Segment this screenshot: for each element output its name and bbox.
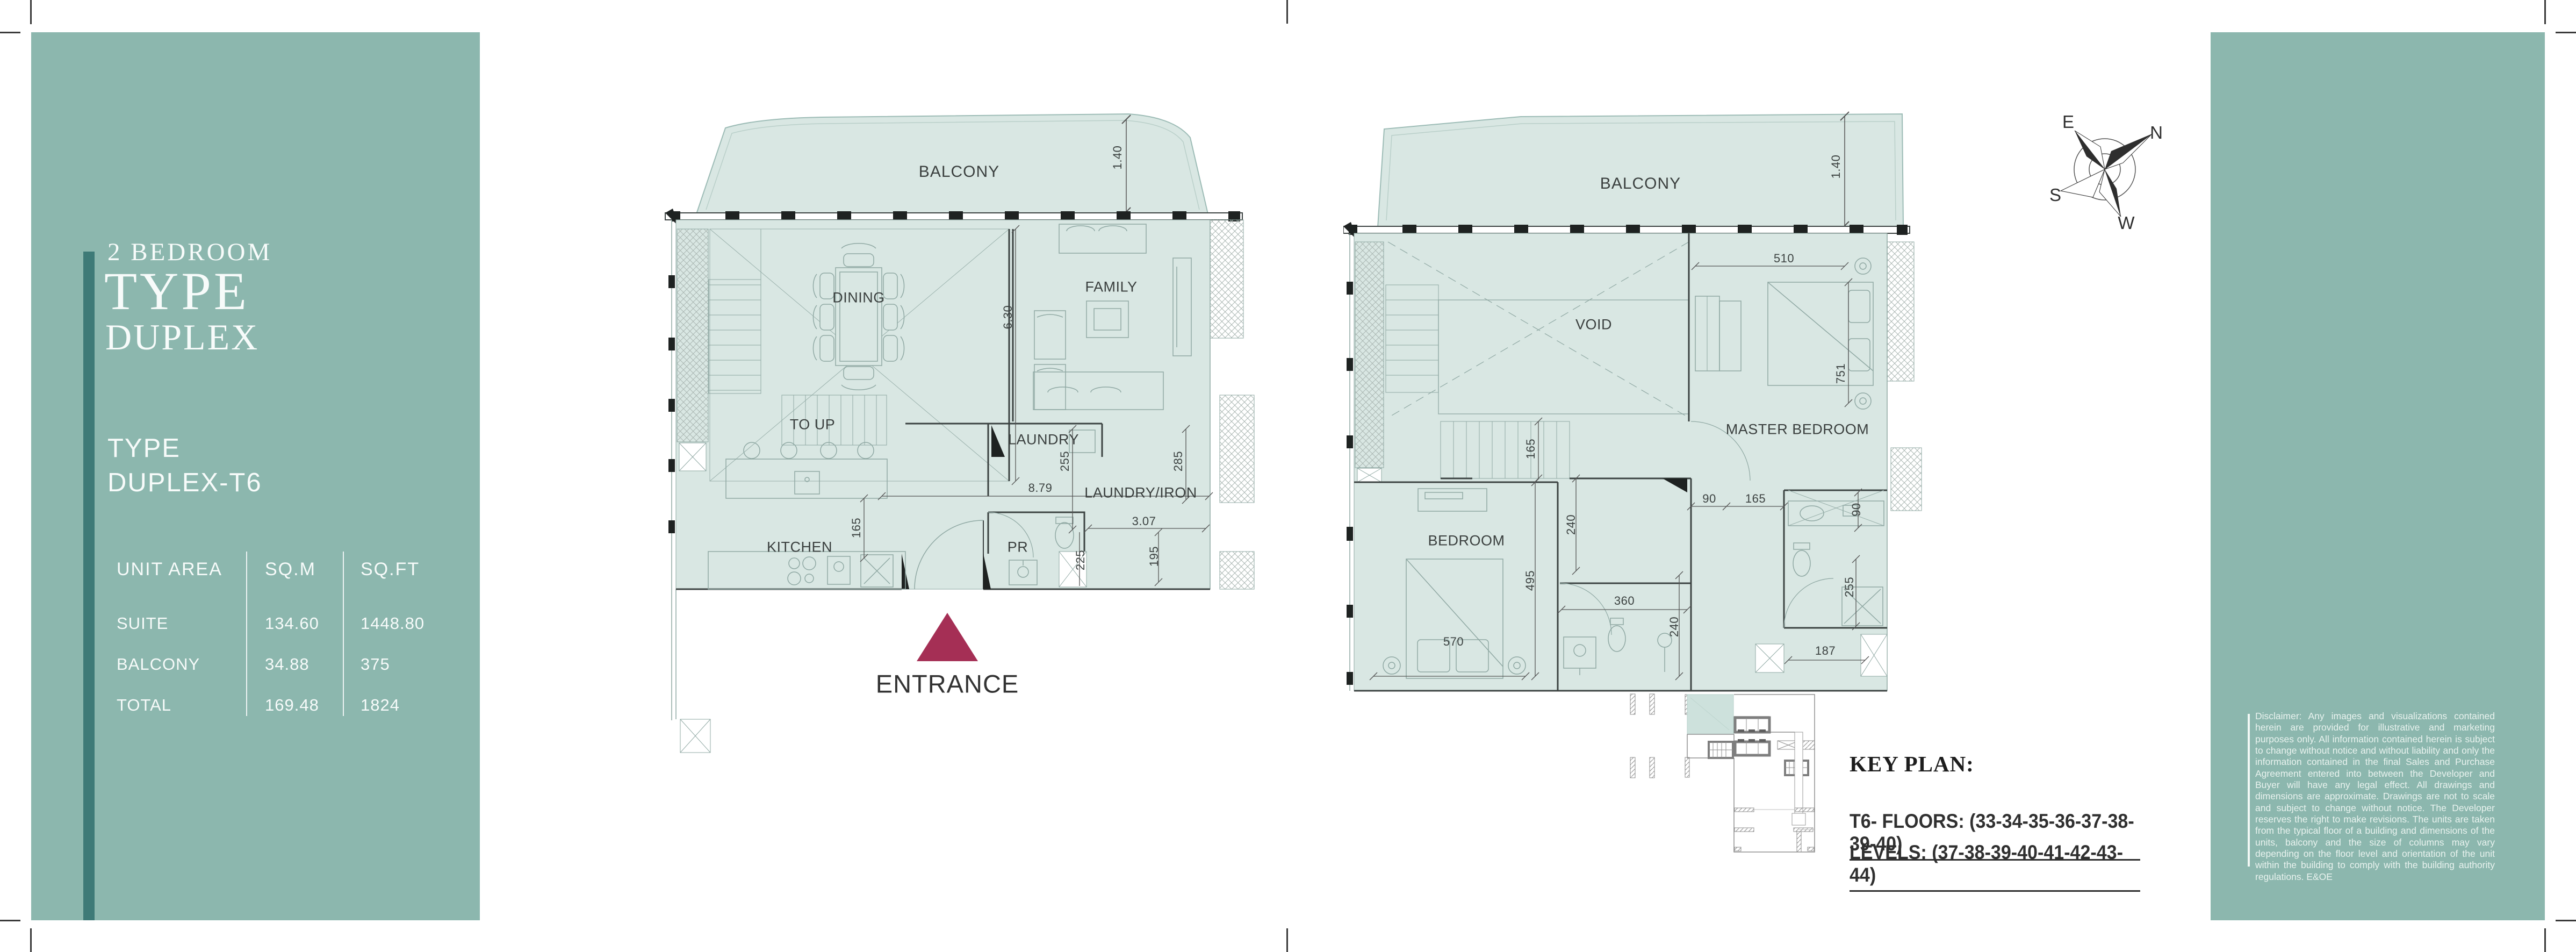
- col-header-sqm: SQ.M: [265, 559, 316, 580]
- dim-165-stair: 165: [1524, 439, 1538, 459]
- disclaimer-text: Disclaimer: Any images and visualization…: [2255, 711, 2495, 883]
- row-balcony-sqm: 34.88: [265, 655, 310, 674]
- dim-90-a: 90: [1702, 492, 1716, 506]
- key-plan-drawing: [1623, 691, 1848, 863]
- dim-1-40-upper: 1.40: [1829, 155, 1843, 179]
- key-plan-levels: LEVELS: (37-38-39-40-41-42-43-44): [1850, 841, 2140, 892]
- dim-240-a: 240: [1564, 514, 1578, 535]
- col-header-sqft: SQ.FT: [361, 559, 420, 580]
- left-info-panel: 2 BEDROOM TYPE DUPLEX TYPE DUPLEX-T6 UNI…: [31, 32, 480, 920]
- dim-165: 165: [850, 518, 864, 538]
- row-suite-sqft: 1448.80: [361, 614, 424, 633]
- row-balcony-sqft: 375: [361, 655, 390, 674]
- dim-3-07: 3.07: [1132, 514, 1156, 528]
- room-label-dining: DINING: [832, 290, 885, 306]
- dim-1-40: 1.40: [1111, 146, 1125, 170]
- room-label-to-up: TO UP: [790, 417, 836, 433]
- crop-mark: [1286, 928, 1288, 952]
- floor-plan-lower-level: BALCONY 1.40 DINING FAMILY 6.30 TO UP 8.…: [661, 102, 1257, 769]
- crop-mark: [0, 920, 20, 921]
- entrance-arrow-icon: [915, 612, 980, 663]
- dim-240-b: 240: [1667, 617, 1681, 637]
- dim-360: 360: [1614, 594, 1635, 608]
- table-divider: [246, 552, 247, 716]
- crop-mark: [2544, 0, 2546, 24]
- dim-6-30: 6.30: [1001, 305, 1015, 330]
- row-suite-sqm: 134.60: [265, 614, 319, 633]
- room-label-balcony: BALCONY: [919, 163, 999, 181]
- dim-570: 570: [1443, 635, 1464, 649]
- crop-mark: [30, 0, 32, 24]
- crop-mark: [2556, 32, 2576, 33]
- room-label-void: VOID: [1575, 317, 1612, 333]
- floor-plan-upper-drawing: [1343, 102, 1977, 710]
- room-label-pr: PR: [1008, 539, 1028, 556]
- row-total-sqm: 169.48: [265, 696, 319, 715]
- dim-285: 285: [1171, 451, 1185, 471]
- disclaimer-left-rule: [2248, 714, 2250, 867]
- room-label-laundry-iron: LAUNDRY/IRON: [1084, 485, 1197, 502]
- room-label-kitchen: KITCHEN: [767, 539, 832, 556]
- room-label-bedroom: BEDROOM: [1428, 533, 1505, 549]
- room-label-family: FAMILY: [1085, 279, 1137, 296]
- compass-label-south: S: [2049, 185, 2061, 205]
- dim-187: 187: [1815, 644, 1836, 658]
- crop-mark: [30, 928, 32, 952]
- table-divider: [343, 552, 344, 716]
- entrance-label: ENTRANCE: [876, 669, 1019, 699]
- unit-type-heading-large: TYPE: [104, 260, 249, 322]
- crop-mark: [1286, 0, 1288, 24]
- room-label-master-bedroom: MASTER BEDROOM: [1726, 421, 1869, 438]
- key-plan-section: KEY PLAN: T6- FLOORS: (33-34-35-36-37-38…: [1623, 691, 2165, 874]
- compass-label-north: N: [2150, 123, 2163, 143]
- dim-510: 510: [1774, 252, 1794, 266]
- room-label-laundry: LAUNDRY: [1008, 432, 1079, 448]
- dim-90-b: 90: [1850, 503, 1863, 516]
- crop-mark: [0, 32, 20, 33]
- dim-751: 751: [1834, 363, 1848, 384]
- dim-8-79: 8.79: [1028, 481, 1053, 495]
- right-disclaimer-panel: Disclaimer: Any images and visualization…: [2211, 32, 2545, 920]
- type-code-line1: TYPE: [107, 433, 181, 463]
- floor-plan-upper-level: BALCONY 1.40 VOID 510 MASTER BEDROOM 751…: [1343, 102, 1977, 710]
- dim-255: 255: [1058, 451, 1072, 471]
- crop-mark: [2544, 928, 2546, 952]
- dim-195: 195: [1147, 546, 1161, 567]
- crop-mark: [2556, 920, 2576, 921]
- row-total-label: TOTAL: [117, 696, 171, 715]
- compass-rose: E N S W: [2045, 110, 2168, 234]
- row-suite-label: SUITE: [117, 614, 168, 633]
- dim-255-upper: 255: [1843, 577, 1857, 597]
- room-label-balcony-upper: BALCONY: [1600, 175, 1681, 193]
- col-header-unit-area: UNIT AREA: [117, 559, 222, 580]
- accent-bar: [83, 252, 95, 920]
- row-balcony-label: BALCONY: [117, 655, 200, 674]
- dim-225: 225: [1074, 550, 1088, 570]
- key-plan-heading: KEY PLAN:: [1850, 751, 1974, 777]
- unit-type-heading-sub: DUPLEX: [105, 316, 259, 359]
- compass-label-east: E: [2062, 112, 2074, 132]
- dim-495: 495: [1523, 570, 1537, 591]
- type-code-line2: DUPLEX-T6: [107, 468, 262, 498]
- row-total-sqft: 1824: [361, 696, 400, 715]
- compass-label-west: W: [2118, 213, 2134, 233]
- dim-165-b: 165: [1745, 492, 1766, 506]
